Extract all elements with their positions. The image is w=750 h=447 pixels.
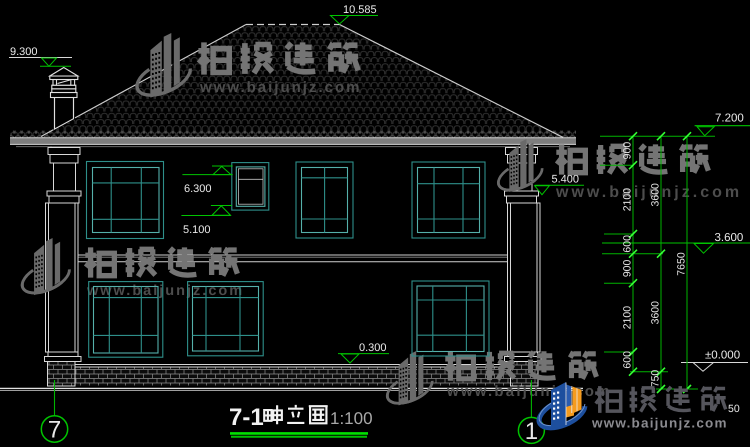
svg-text:50: 50 <box>728 403 740 415</box>
svg-text:7-1: 7-1 <box>229 404 264 431</box>
svg-text:5.100: 5.100 <box>183 224 211 236</box>
svg-text:www.baijunjz.com: www.baijunjz.com <box>591 416 728 431</box>
svg-text:10.585: 10.585 <box>343 4 377 16</box>
svg-text:±0.000: ±0.000 <box>705 350 740 362</box>
svg-text:9.300: 9.300 <box>10 46 38 58</box>
svg-text:7650: 7650 <box>676 252 688 276</box>
svg-text:0.300: 0.300 <box>359 342 387 354</box>
svg-text:5.400: 5.400 <box>552 174 580 186</box>
svg-text:3.600: 3.600 <box>715 232 744 244</box>
svg-text:2100: 2100 <box>622 188 634 212</box>
svg-text:6.300: 6.300 <box>184 183 212 195</box>
svg-text:www.baijunjz.com: www.baijunjz.com <box>446 383 612 400</box>
svg-text:7: 7 <box>48 417 61 444</box>
svg-text:1: 1 <box>525 418 538 445</box>
svg-text:www.baijunjz.com: www.baijunjz.com <box>199 79 361 96</box>
svg-text:600: 600 <box>622 351 634 369</box>
svg-text:2100: 2100 <box>622 306 634 330</box>
svg-text:600: 600 <box>622 235 634 253</box>
svg-text:7.200: 7.200 <box>715 113 744 125</box>
svg-text:750: 750 <box>650 370 662 388</box>
svg-text:900: 900 <box>622 259 634 277</box>
svg-text:1:100: 1:100 <box>330 409 373 428</box>
svg-text:900: 900 <box>622 142 634 160</box>
svg-text:3600: 3600 <box>650 301 662 325</box>
svg-text:3600: 3600 <box>650 183 662 207</box>
